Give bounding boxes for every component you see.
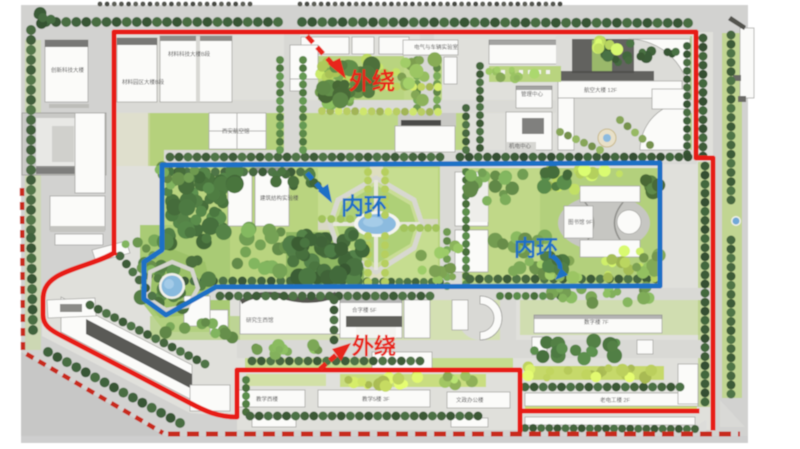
svg-text:内环: 内环 [514, 236, 558, 261]
svg-text:材料园区大楼B段: 材料园区大楼B段 [122, 78, 165, 86]
svg-text:文政办公楼: 文政办公楼 [456, 396, 484, 404]
svg-text:机电中心: 机电中心 [509, 142, 532, 150]
svg-text:数字楼 7F: 数字楼 7F [584, 318, 609, 326]
svg-text:教学5楼 3F: 教学5楼 3F [362, 395, 390, 403]
svg-text:创新科技大楼: 创新科技大楼 [51, 66, 85, 74]
svg-text:西安航空馆: 西安航空馆 [222, 127, 250, 135]
svg-text:内环: 内环 [341, 193, 387, 219]
svg-text:外绕: 外绕 [349, 68, 395, 94]
svg-text:材料科技大楼B段: 材料科技大楼B段 [168, 50, 211, 58]
svg-text:研究生西馆: 研究生西馆 [246, 316, 274, 324]
svg-text:外绕: 外绕 [352, 334, 396, 359]
svg-text:电气与车辆实验室: 电气与车辆实验室 [414, 43, 459, 51]
svg-text:老电工楼 2F: 老电工楼 2F [600, 396, 631, 404]
svg-text:航空大楼 12F: 航空大楼 12F [584, 86, 618, 94]
svg-text:管理中心: 管理中心 [521, 90, 544, 98]
svg-text:建筑结构实验楼: 建筑结构实验楼 [260, 194, 299, 202]
svg-text:图书馆 9F: 图书馆 9F [568, 218, 593, 226]
svg-text:合字楼 5F: 合字楼 5F [352, 306, 377, 314]
svg-text:教学西楼: 教学西楼 [256, 395, 279, 403]
